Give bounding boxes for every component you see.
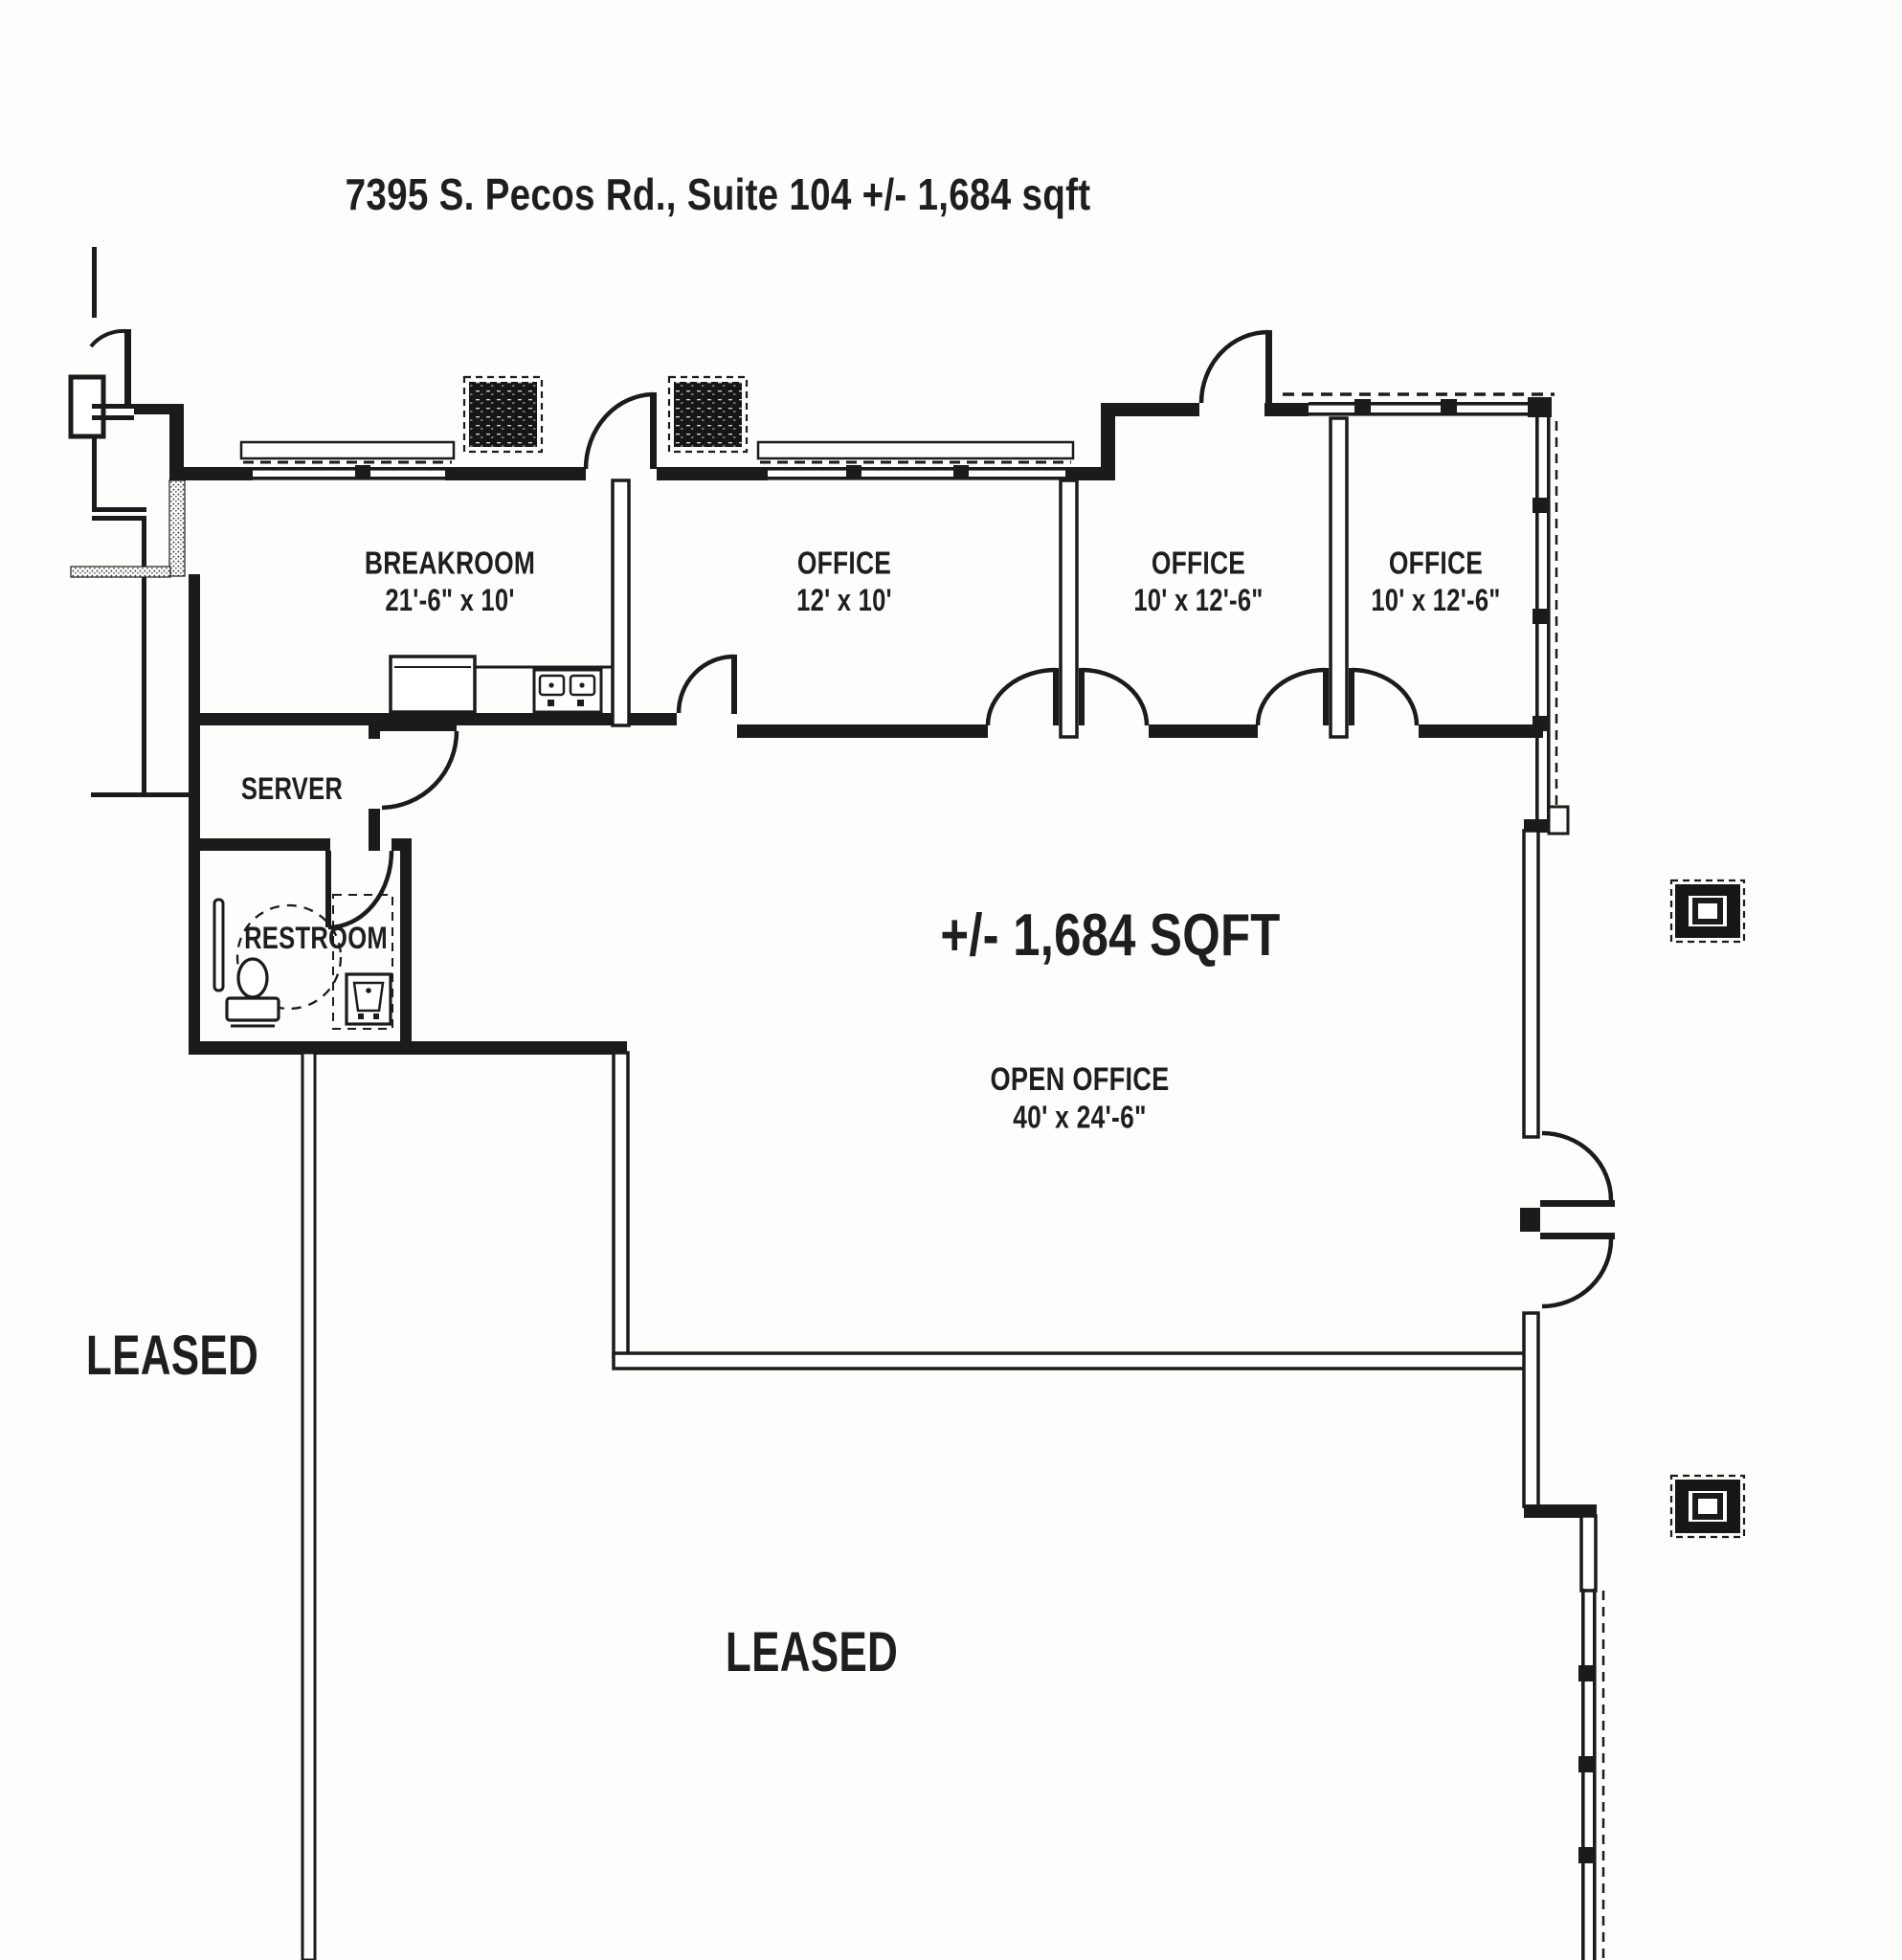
east-facade-window-top: [1524, 417, 1568, 834]
suite-south-boundary: [189, 1041, 1531, 1369]
open-office-dims: 40' x 24'-6": [1013, 1102, 1147, 1133]
entry-door-mullion: [1520, 1208, 1540, 1232]
restroom-label: RESTROOM: [244, 923, 388, 953]
restroom-door: [325, 851, 392, 927]
office-divider-2: [1331, 418, 1347, 737]
storefront-window-2: [758, 442, 1073, 480]
exterior-column-2: [1671, 1476, 1744, 1537]
server-label: SERVER: [241, 773, 343, 804]
suite-east-wall: [1524, 831, 1538, 1506]
grab-bar: [214, 900, 223, 991]
east-wall-step: [1524, 1504, 1597, 1591]
office-1-label: OFFICE: [797, 547, 891, 579]
exterior-column-1: [1671, 880, 1744, 942]
column-top-1: [464, 377, 542, 452]
office-1-door: [988, 668, 1059, 725]
breakroom-dims: 21'-6" x 10': [385, 585, 514, 615]
double-entry-door: [1520, 1133, 1615, 1306]
restroom-sink: [347, 974, 391, 1024]
office-2-door-left: [1079, 668, 1147, 725]
open-office-area: +/- 1,684 SQFT: [940, 906, 1280, 966]
plan-title: 7395 S. Pecos Rd., Suite 104 +/- 1,684 s…: [346, 172, 1091, 216]
leased-left-label: LEASED: [86, 1328, 258, 1384]
floor-plan-drawing: [0, 0, 1902, 1960]
breakroom-label: BREAKROOM: [365, 547, 535, 579]
column-top-2: [669, 377, 747, 452]
breakroom-sink: [534, 670, 601, 712]
storefront-window-3: [1283, 394, 1555, 417]
office-3-dims: 10' x 12'-6": [1371, 585, 1500, 615]
toilet: [227, 959, 279, 1026]
storefront-window-1: [241, 442, 454, 480]
office-2-label: OFFICE: [1152, 547, 1245, 579]
server-door: [380, 723, 457, 808]
breakroom-counter: [391, 657, 613, 712]
floor-plan-page: 7395 S. Pecos Rd., Suite 104 +/- 1,684 s…: [0, 0, 1902, 1960]
office-divider-1: [1061, 480, 1077, 737]
exterior-door-north-2: [1201, 330, 1272, 405]
office-3-label: OFFICE: [1389, 547, 1483, 579]
office-2-dims: 10' x 12'-6": [1133, 585, 1263, 615]
office-2-door-right: [1258, 668, 1329, 725]
breakroom-door: [679, 655, 737, 714]
office-3-door: [1349, 668, 1417, 725]
office-south-walls: [737, 724, 1543, 738]
exterior-door-north-1: [586, 392, 657, 469]
leased-bottom-label: LEASED: [726, 1625, 898, 1681]
leased-demising-wall: [302, 1053, 315, 1960]
north-wall-upper: [1101, 403, 1309, 480]
east-facade-window-bottom: [1578, 1589, 1603, 1960]
open-office-label: OPEN OFFICE: [990, 1063, 1169, 1096]
office-1-dims: 12' x 10': [796, 585, 892, 615]
